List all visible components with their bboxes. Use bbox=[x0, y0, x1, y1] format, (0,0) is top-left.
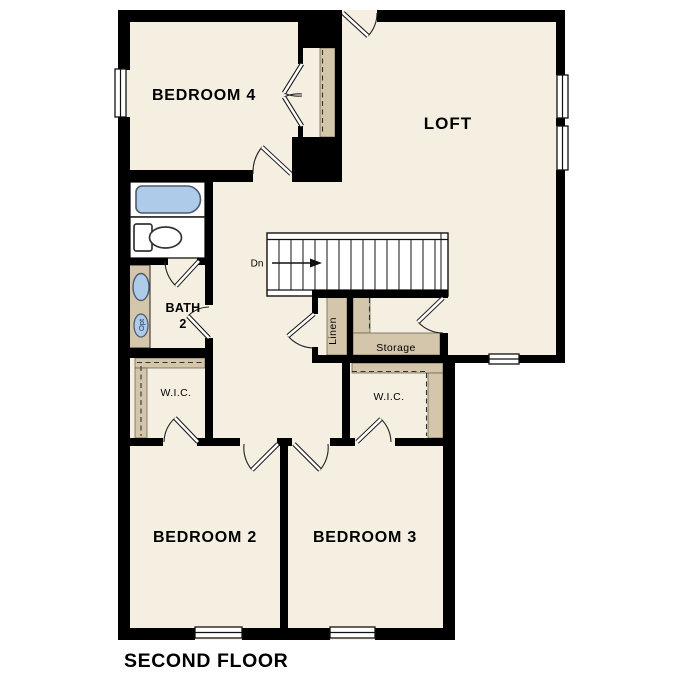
wic-right-label: W.I.C. bbox=[374, 391, 405, 403]
storage-label: Storage bbox=[376, 342, 416, 354]
wic-right-shelf-side bbox=[428, 373, 443, 438]
bedroom2-label: BEDROOM 2 bbox=[153, 529, 257, 546]
linen-label: Linen bbox=[327, 317, 339, 345]
window-loft-east-2 bbox=[557, 126, 568, 170]
floorplan-drawing: BEDROOM 4 LOFT BEDROOM 2 BEDROOM 3 BATH … bbox=[0, 0, 687, 687]
storage-shelf-west bbox=[353, 296, 370, 333]
page-title: SECOND FLOOR bbox=[124, 650, 288, 672]
bath-label-line1: BATH bbox=[166, 301, 201, 315]
bedroom4-label: BEDROOM 4 bbox=[152, 87, 256, 104]
window-bedroom2-south bbox=[195, 627, 242, 638]
bedroom3-label: BEDROOM 3 bbox=[313, 529, 417, 546]
bathtub bbox=[136, 186, 201, 213]
bath-label-line2: 2 bbox=[179, 317, 186, 331]
window-bedroom4-west bbox=[115, 69, 126, 117]
floorplan-canvas: BEDROOM 4 LOFT BEDROOM 2 BEDROOM 3 BATH … bbox=[0, 0, 687, 687]
loft-label: LOFT bbox=[424, 114, 472, 133]
sink bbox=[133, 274, 149, 301]
optional-sink-label: Opt bbox=[137, 318, 146, 331]
window-loft-east-1 bbox=[557, 75, 568, 118]
window-loft-south bbox=[489, 354, 519, 364]
stairs-down-label: Dn bbox=[251, 259, 264, 270]
wic-left-label: W.I.C. bbox=[161, 387, 192, 399]
staircase bbox=[267, 233, 448, 296]
window-bedroom3-south bbox=[330, 627, 375, 638]
toilet-bowl bbox=[150, 227, 182, 248]
